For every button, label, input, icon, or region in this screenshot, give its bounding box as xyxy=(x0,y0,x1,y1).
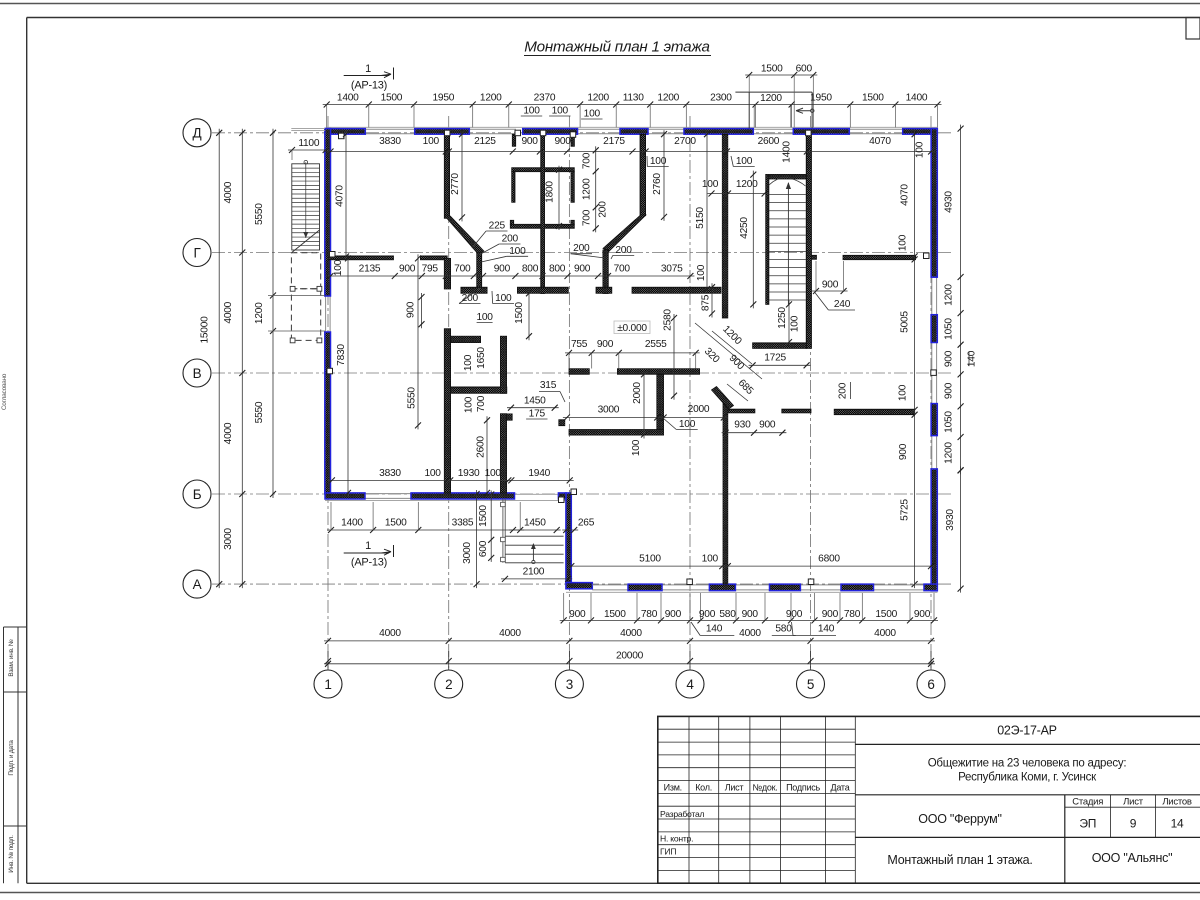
svg-text:6800: 6800 xyxy=(818,554,840,565)
svg-text:Монтажный план 1 этажа.: Монтажный план 1 этажа. xyxy=(887,853,1032,867)
svg-text:5550: 5550 xyxy=(254,203,265,225)
svg-text:5550: 5550 xyxy=(254,401,265,423)
svg-text:100: 100 xyxy=(523,106,540,117)
svg-text:5: 5 xyxy=(807,677,814,692)
svg-text:2370: 2370 xyxy=(534,93,556,104)
svg-text:1250: 1250 xyxy=(777,307,788,329)
svg-text:700: 700 xyxy=(476,395,487,412)
svg-text:900: 900 xyxy=(742,609,759,620)
svg-text:795: 795 xyxy=(422,264,439,275)
svg-text:4000: 4000 xyxy=(223,301,234,323)
svg-text:700: 700 xyxy=(582,209,593,226)
svg-text:Б: Б xyxy=(193,487,202,502)
svg-text:Инв. № подл.: Инв. № подл. xyxy=(8,835,15,873)
svg-text:225: 225 xyxy=(489,221,506,232)
svg-text:1200: 1200 xyxy=(657,93,679,104)
svg-text:2600: 2600 xyxy=(758,136,780,147)
svg-text:100: 100 xyxy=(736,156,753,167)
svg-text:4070: 4070 xyxy=(335,185,346,207)
svg-text:1500: 1500 xyxy=(862,93,884,104)
svg-text:140: 140 xyxy=(966,350,977,367)
svg-text:700: 700 xyxy=(582,152,593,169)
svg-text:1500: 1500 xyxy=(604,609,626,620)
svg-text:Подпись: Подпись xyxy=(786,783,820,793)
svg-text:15000: 15000 xyxy=(200,316,211,344)
svg-text:3930: 3930 xyxy=(945,509,956,531)
svg-text:900: 900 xyxy=(822,609,839,620)
svg-text:900: 900 xyxy=(699,609,716,620)
svg-text:265: 265 xyxy=(578,518,595,529)
svg-text:100: 100 xyxy=(702,179,719,190)
svg-text:100: 100 xyxy=(790,315,801,332)
svg-text:100: 100 xyxy=(495,293,512,304)
svg-text:200: 200 xyxy=(615,245,632,256)
svg-text:100: 100 xyxy=(552,106,569,117)
svg-text:4000: 4000 xyxy=(379,628,401,639)
svg-text:100: 100 xyxy=(509,246,526,257)
svg-text:315: 315 xyxy=(540,380,557,391)
svg-text:Стадия: Стадия xyxy=(1072,797,1103,808)
svg-text:4070: 4070 xyxy=(900,184,911,206)
svg-text:1400: 1400 xyxy=(337,93,359,104)
svg-text:4000: 4000 xyxy=(499,628,521,639)
svg-text:1200: 1200 xyxy=(944,442,955,464)
svg-text:1500: 1500 xyxy=(514,302,525,324)
svg-text:1400: 1400 xyxy=(906,93,928,104)
svg-text:Дата: Дата xyxy=(831,783,850,793)
svg-text:1500: 1500 xyxy=(761,63,783,74)
svg-text:200: 200 xyxy=(462,293,479,304)
svg-text:2125: 2125 xyxy=(474,136,496,147)
svg-text:1650: 1650 xyxy=(476,347,487,369)
svg-text:4250: 4250 xyxy=(739,217,750,239)
svg-text:Изм.: Изм. xyxy=(664,783,682,793)
svg-text:Подп. и дата: Подп. и дата xyxy=(8,740,15,776)
svg-text:140: 140 xyxy=(706,624,723,635)
svg-text:4930: 4930 xyxy=(944,191,955,213)
svg-text:755: 755 xyxy=(571,339,588,350)
svg-text:2175: 2175 xyxy=(603,136,625,147)
svg-text:100: 100 xyxy=(898,234,909,251)
svg-text:900: 900 xyxy=(521,136,538,147)
svg-text:900: 900 xyxy=(944,382,955,399)
svg-text:930: 930 xyxy=(734,420,751,431)
svg-text:1930: 1930 xyxy=(458,468,480,479)
svg-text:Листов: Листов xyxy=(1162,797,1192,808)
svg-text:100: 100 xyxy=(485,468,502,479)
svg-text:100: 100 xyxy=(696,264,707,281)
svg-text:А: А xyxy=(193,577,202,592)
svg-text:20000: 20000 xyxy=(616,651,644,662)
svg-text:5550: 5550 xyxy=(407,387,418,409)
svg-text:600: 600 xyxy=(478,540,489,557)
svg-text:1400: 1400 xyxy=(782,141,793,163)
svg-text:4000: 4000 xyxy=(223,181,234,203)
svg-text:1200: 1200 xyxy=(254,302,265,324)
svg-text:900: 900 xyxy=(597,339,614,350)
svg-text:800: 800 xyxy=(522,264,539,275)
svg-text:1200: 1200 xyxy=(944,284,955,306)
svg-text:4070: 4070 xyxy=(869,136,891,147)
svg-text:5100: 5100 xyxy=(639,554,661,565)
svg-text:200: 200 xyxy=(573,243,590,254)
svg-text:100: 100 xyxy=(702,554,719,565)
svg-text:1450: 1450 xyxy=(524,518,546,529)
svg-text:200: 200 xyxy=(598,201,609,218)
svg-text:200: 200 xyxy=(502,234,519,245)
svg-text:1200: 1200 xyxy=(587,93,609,104)
svg-text:1500: 1500 xyxy=(385,518,407,529)
svg-text:700: 700 xyxy=(614,264,631,275)
svg-text:2000: 2000 xyxy=(688,404,710,415)
svg-text:3: 3 xyxy=(566,677,573,692)
svg-text:240: 240 xyxy=(834,299,851,310)
svg-text:1100: 1100 xyxy=(298,138,319,149)
svg-text:900: 900 xyxy=(786,609,803,620)
svg-text:Республика Коми, г. Усинск: Республика Коми, г. Усинск xyxy=(958,772,1097,784)
svg-text:900: 900 xyxy=(406,301,417,318)
svg-text:900: 900 xyxy=(914,609,931,620)
svg-text:100: 100 xyxy=(631,439,642,456)
svg-text:800: 800 xyxy=(549,264,566,275)
svg-text:600: 600 xyxy=(796,63,813,74)
svg-text:2770: 2770 xyxy=(450,173,461,195)
svg-text:5005: 5005 xyxy=(900,311,911,333)
svg-text:(АР-13): (АР-13) xyxy=(351,80,387,92)
svg-text:Лист: Лист xyxy=(725,783,744,793)
svg-text:Разработал: Разработал xyxy=(660,809,705,819)
svg-text:3830: 3830 xyxy=(379,468,401,479)
svg-text:±0.000: ±0.000 xyxy=(617,323,647,334)
svg-text:3385: 3385 xyxy=(452,518,474,529)
svg-text:7830: 7830 xyxy=(336,344,347,366)
svg-text:5150: 5150 xyxy=(695,207,706,229)
svg-text:3830: 3830 xyxy=(379,136,401,147)
svg-text:1200: 1200 xyxy=(480,93,502,104)
svg-text:875: 875 xyxy=(700,294,711,311)
svg-text:4000: 4000 xyxy=(620,628,642,639)
svg-text:3075: 3075 xyxy=(661,264,683,275)
svg-text:1200: 1200 xyxy=(760,93,782,104)
svg-text:100: 100 xyxy=(463,354,474,371)
svg-text:ЭП: ЭП xyxy=(1079,817,1096,831)
svg-text:1: 1 xyxy=(324,677,331,692)
svg-text:1725: 1725 xyxy=(764,353,786,364)
svg-text:100: 100 xyxy=(424,468,441,479)
svg-text:1050: 1050 xyxy=(944,318,955,340)
svg-text:900: 900 xyxy=(759,420,776,431)
svg-text:900: 900 xyxy=(665,609,682,620)
svg-text:6: 6 xyxy=(927,677,934,692)
svg-text:1200: 1200 xyxy=(736,179,758,190)
svg-text:4000: 4000 xyxy=(874,628,896,639)
svg-text:Д: Д xyxy=(193,126,202,141)
svg-text:175: 175 xyxy=(529,409,546,420)
svg-text:100: 100 xyxy=(476,312,493,323)
svg-text:780: 780 xyxy=(844,609,861,620)
svg-text:5725: 5725 xyxy=(900,499,911,521)
svg-text:100: 100 xyxy=(584,109,601,120)
svg-text:2600: 2600 xyxy=(476,436,487,458)
svg-text:В: В xyxy=(193,366,202,381)
svg-text:2700: 2700 xyxy=(674,136,696,147)
svg-text:2300: 2300 xyxy=(710,93,732,104)
svg-text:Кол.: Кол. xyxy=(695,783,712,793)
svg-text:1940: 1940 xyxy=(528,468,550,479)
svg-text:900: 900 xyxy=(944,350,955,367)
svg-text:(АР-13): (АР-13) xyxy=(351,557,387,569)
svg-text:3000: 3000 xyxy=(462,542,473,564)
svg-text:1400: 1400 xyxy=(341,518,363,529)
svg-text:№док.: №док. xyxy=(752,783,777,793)
svg-text:Г: Г xyxy=(193,245,201,260)
svg-text:580: 580 xyxy=(719,609,736,620)
svg-text:100: 100 xyxy=(679,419,696,430)
svg-text:3000: 3000 xyxy=(223,528,234,550)
svg-text:2580: 2580 xyxy=(662,309,673,331)
svg-text:Общежитие на 23 человека по ад: Общежитие на 23 человека по адресу: xyxy=(928,758,1127,770)
svg-text:4: 4 xyxy=(686,677,694,692)
svg-text:Монтажный план 1 этажа: Монтажный план 1 этажа xyxy=(524,39,709,56)
svg-text:2100: 2100 xyxy=(523,567,545,578)
svg-text:900: 900 xyxy=(554,136,571,147)
svg-text:2000: 2000 xyxy=(632,382,643,404)
svg-text:140: 140 xyxy=(818,624,835,635)
svg-text:1800: 1800 xyxy=(544,181,555,203)
svg-text:4000: 4000 xyxy=(739,628,761,639)
svg-text:1500: 1500 xyxy=(381,93,403,104)
svg-text:100: 100 xyxy=(898,384,909,401)
svg-text:1: 1 xyxy=(365,540,371,552)
svg-text:14: 14 xyxy=(1171,817,1184,831)
svg-text:ООО "Альянс": ООО "Альянс" xyxy=(1092,851,1173,865)
svg-text:1450: 1450 xyxy=(524,396,546,407)
svg-text:900: 900 xyxy=(574,264,591,275)
svg-text:2135: 2135 xyxy=(359,264,381,275)
svg-text:2: 2 xyxy=(445,677,452,692)
svg-text:1200: 1200 xyxy=(582,178,593,200)
svg-text:1950: 1950 xyxy=(433,93,455,104)
svg-text:ООО "Феррум": ООО "Феррум" xyxy=(918,812,1001,826)
svg-text:ГИП: ГИП xyxy=(660,846,676,856)
svg-text:2555: 2555 xyxy=(645,339,667,350)
svg-text:100: 100 xyxy=(333,259,344,276)
svg-text:1500: 1500 xyxy=(478,505,489,527)
svg-text:100: 100 xyxy=(915,141,926,158)
svg-text:Н. контр.: Н. контр. xyxy=(660,834,693,844)
svg-text:1: 1 xyxy=(365,63,371,75)
svg-text:100: 100 xyxy=(423,136,440,147)
svg-text:3000: 3000 xyxy=(598,405,620,416)
svg-text:900: 900 xyxy=(898,443,909,460)
svg-text:9: 9 xyxy=(1130,817,1137,831)
svg-text:900: 900 xyxy=(569,609,586,620)
svg-text:2760: 2760 xyxy=(652,173,663,195)
svg-text:580: 580 xyxy=(775,624,792,635)
svg-text:1950: 1950 xyxy=(810,93,832,104)
svg-text:Лист: Лист xyxy=(1123,797,1144,808)
svg-text:780: 780 xyxy=(641,609,658,620)
svg-text:02Э-17-АР: 02Э-17-АР xyxy=(997,724,1057,738)
svg-text:200: 200 xyxy=(837,382,848,399)
svg-text:1130: 1130 xyxy=(623,93,644,104)
svg-text:Согласовано: Согласовано xyxy=(1,373,8,410)
svg-text:1050: 1050 xyxy=(944,411,955,433)
svg-text:4000: 4000 xyxy=(223,422,234,444)
svg-text:900: 900 xyxy=(822,280,839,291)
svg-text:900: 900 xyxy=(399,264,416,275)
svg-text:Взам. инв. №: Взам. инв. № xyxy=(8,639,15,677)
svg-text:1500: 1500 xyxy=(875,609,897,620)
svg-text:100: 100 xyxy=(464,396,475,413)
svg-text:900: 900 xyxy=(494,264,511,275)
svg-text:700: 700 xyxy=(454,264,471,275)
